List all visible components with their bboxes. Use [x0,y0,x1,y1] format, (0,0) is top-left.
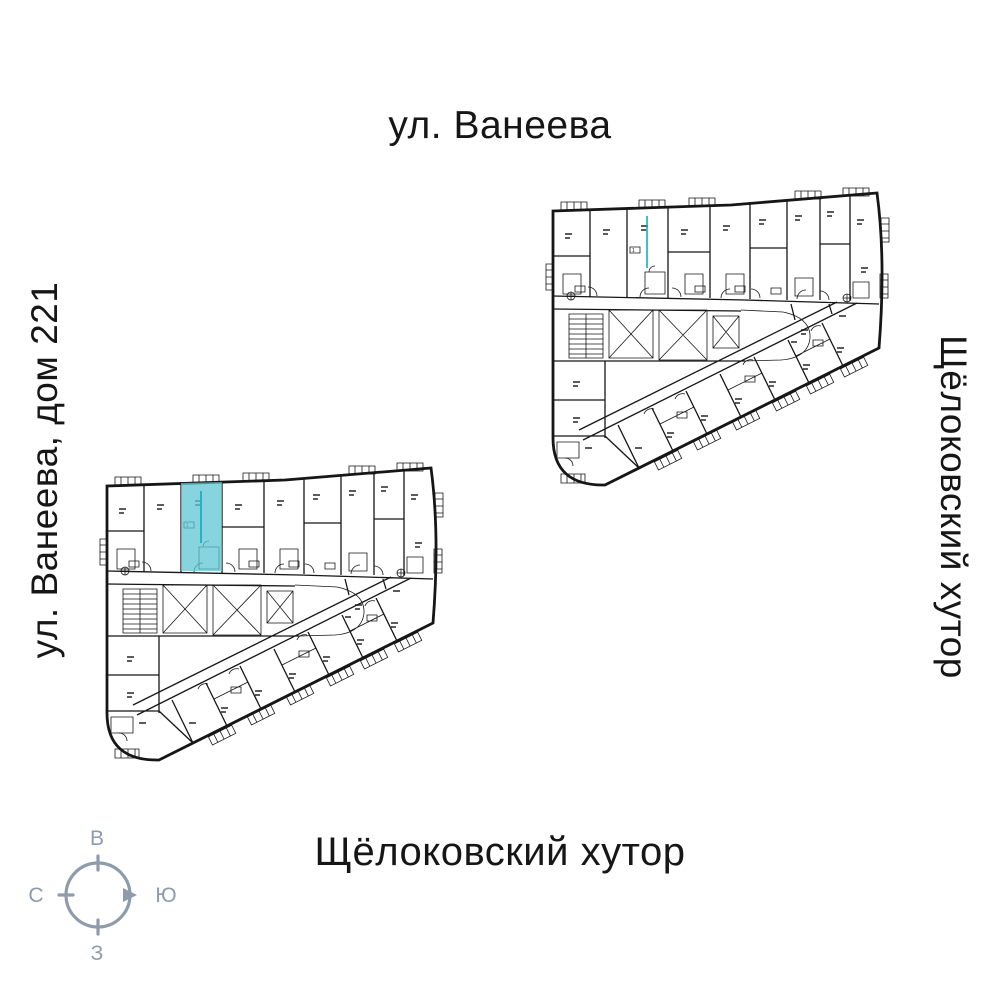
district-label-bottom: Щёлоковский хутор [0,830,1000,875]
highlighted-unit[interactable] [181,482,222,571]
street-label-left: ул. Ванеева, дом 221 [24,282,66,659]
compass-letter-east: В [90,827,104,851]
site-plan-page: 1 ул. Ванеева ул. Ванеева, дом 221 Щёлок… [0,0,1000,1000]
district-label-right: Щёлоковский хутор [932,335,974,679]
floor-plan-left[interactable] [100,463,443,760]
street-label-top: ул. Ванеева [0,104,1000,148]
compass-letter-west: З [91,942,104,966]
compass-letter-north: С [28,884,43,908]
compass-letter-south: Ю [155,884,176,908]
floor-plan-right[interactable] [546,188,889,485]
